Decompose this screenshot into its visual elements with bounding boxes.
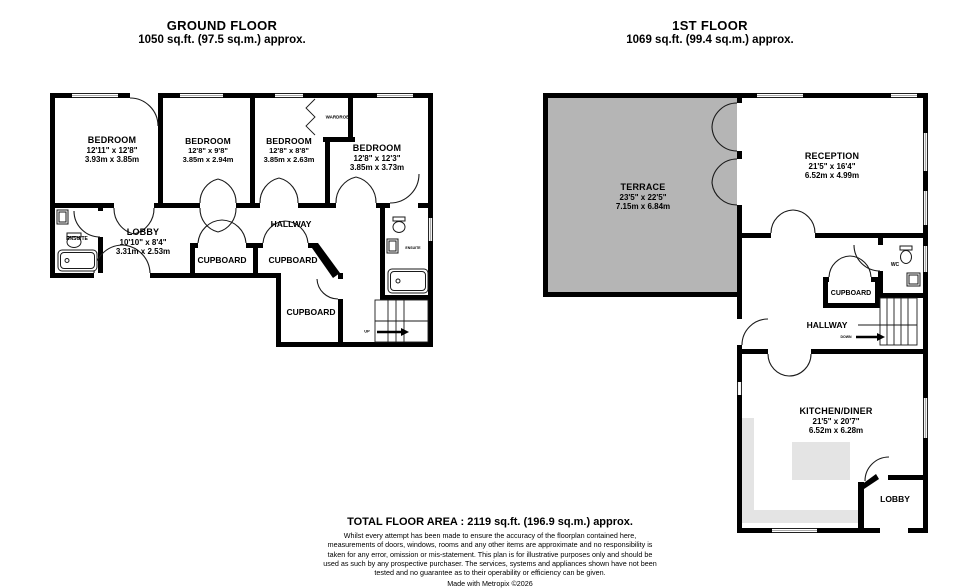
room-label-kitchen-diner: KITCHEN/DINER 21'5" x 20'7" 6.52m x 6.28… — [799, 406, 872, 436]
room-label-lobby: LOBBY 10'10" x 8'4" 3.31m x 2.53m — [116, 227, 170, 257]
room-label-terrace: TERRACE 23'5" x 22'5" 7.15m x 6.84m — [616, 182, 670, 212]
wc-label: WC — [891, 262, 899, 268]
lobby-label: LOBBY — [880, 494, 910, 504]
first-floor-area-text: 1069 sq.ft. (99.4 sq.m.) approx. — [560, 34, 860, 46]
hallway-label: HALLWAY — [807, 320, 848, 330]
room-label-bedroom-3: BEDROOM 12'8" x 8'8" 3.85m x 2.63m — [264, 136, 315, 164]
room-label-bedroom-1: BEDROOM 12'11" x 12'8" 3.93m x 3.85m — [85, 135, 139, 165]
first-floor-plan: TERRACE 23'5" x 22'5" 7.15m x 6.84m RECE… — [543, 93, 928, 533]
first-floor-title: 1ST FLOOR 1069 sq.ft. (99.4 sq.m.) appro… — [560, 18, 860, 46]
room-label-reception: RECEPTION 21'5" x 16'4" 6.52m x 4.99m — [805, 151, 859, 181]
ensuite-left-label: ENSUITE — [66, 236, 88, 242]
credit-text: Made with Metropix ©2026 — [320, 579, 660, 588]
wc-fixtures — [900, 246, 920, 286]
ground-floor-title-text: GROUND FLOOR — [72, 18, 372, 33]
ground-floor-drawing — [50, 93, 433, 347]
ground-floor-title: GROUND FLOOR 1050 sq.ft. (97.5 sq.m.) ap… — [72, 18, 372, 46]
stairs-down-label: DOWN — [840, 335, 851, 339]
down-arrow — [856, 333, 885, 341]
ensuite-right-fixtures — [387, 217, 428, 293]
cupboard-3-label: CUPBOARD — [286, 307, 335, 317]
ground-floor-plan: BEDROOM 12'11" x 12'8" 3.93m x 3.85m BED… — [50, 93, 433, 347]
disclaimer-text: Whilst every attempt has been made to en… — [320, 531, 660, 578]
wardrobe-label: WARDROBE — [326, 114, 353, 119]
stairs-up-label: UP — [364, 330, 370, 335]
cupboard-2-label: CUPBOARD — [268, 255, 317, 265]
room-label-bedroom-4: BEDROOM 12'8" x 12'3" 3.85m x 3.73m — [350, 143, 404, 173]
footer: TOTAL FLOOR AREA : 2119 sq.ft. (196.9 sq… — [320, 516, 660, 588]
wardrobe-bifold-door — [306, 99, 315, 135]
cupboard-label: CUPBOARD — [831, 290, 871, 298]
door-swings — [74, 98, 419, 299]
room-label-bedroom-2: BEDROOM 12'8" x 9'8" 3.85m x 2.94m — [183, 136, 234, 164]
hallway-label: HALLWAY — [271, 219, 312, 229]
ensuite-right-label: ENSUITE — [405, 246, 420, 250]
cupboard-1-label: CUPBOARD — [197, 255, 246, 265]
ground-floor-area-text: 1050 sq.ft. (97.5 sq.m.) approx. — [72, 34, 372, 46]
first-floor-drawing — [543, 93, 928, 533]
total-floor-area: TOTAL FLOOR AREA : 2119 sq.ft. (196.9 sq… — [320, 516, 660, 528]
first-floor-title-text: 1ST FLOOR — [560, 18, 860, 33]
